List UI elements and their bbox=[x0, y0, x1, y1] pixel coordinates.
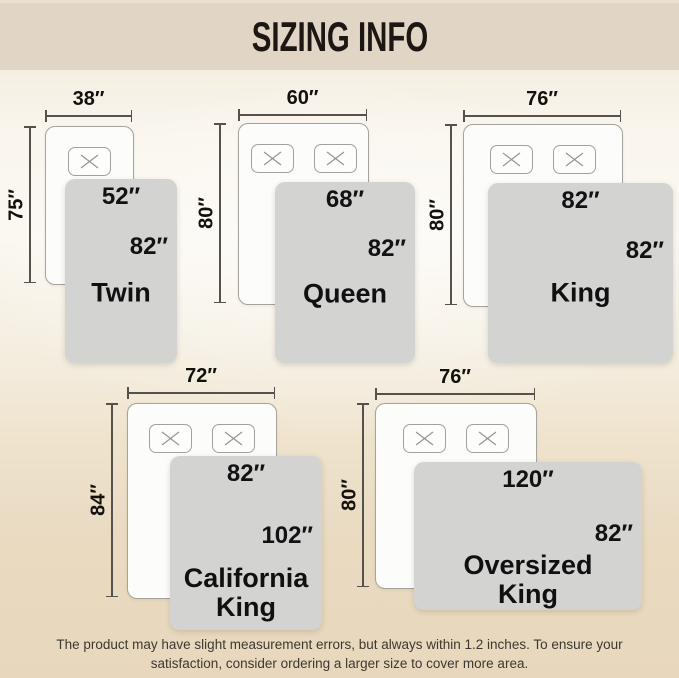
pillow-x-icon bbox=[467, 425, 508, 452]
blanket-california-king: 82″102″California King bbox=[170, 456, 322, 630]
dimension-tick bbox=[463, 110, 465, 122]
bed-width-label: 76″ bbox=[375, 366, 535, 388]
bed-height-label: 80″ bbox=[427, 199, 450, 231]
dimension-tick bbox=[274, 387, 276, 399]
pillow bbox=[403, 424, 446, 453]
blanket-width-label: 52″ bbox=[65, 183, 177, 211]
bed-width-dimension bbox=[375, 388, 535, 400]
pillow-x-icon bbox=[252, 145, 293, 172]
pillow-x-icon bbox=[213, 425, 254, 452]
dimension-line bbox=[463, 115, 621, 117]
size-name-label: California King bbox=[170, 565, 322, 623]
pillow bbox=[490, 145, 533, 174]
dimension-line bbox=[238, 114, 367, 116]
pillow bbox=[149, 424, 192, 453]
blanket-height-label: 82″ bbox=[130, 233, 168, 261]
dimension-tick bbox=[366, 109, 368, 121]
bed-height-label: 84″ bbox=[88, 484, 111, 516]
dimension-line bbox=[450, 124, 452, 305]
sizing-info-page: SIZING INFO 38″75″52″82″Twin60″80″68″82″… bbox=[0, 0, 679, 678]
dimension-tick bbox=[24, 282, 36, 284]
pillow-row bbox=[46, 147, 133, 176]
bed-width-label: 60″ bbox=[238, 87, 367, 109]
dimension-tick bbox=[238, 109, 240, 121]
pillow-x-icon bbox=[150, 425, 191, 452]
dimension-tick bbox=[445, 304, 457, 306]
dimension-tick bbox=[45, 110, 47, 122]
bed-height-label: 80″ bbox=[196, 197, 219, 229]
dimension-line bbox=[375, 393, 535, 395]
dimension-tick bbox=[534, 388, 536, 400]
blanket-oversized-king: 120″82″Oversized King bbox=[414, 462, 642, 610]
blanket-height-label: 82″ bbox=[626, 237, 664, 265]
dimension-tick bbox=[375, 388, 377, 400]
pillow-row bbox=[239, 144, 368, 173]
pillow-x-icon bbox=[404, 425, 445, 452]
pillow-row bbox=[376, 424, 536, 453]
dimension-line bbox=[111, 403, 113, 597]
blanket-width-label: 120″ bbox=[414, 466, 642, 494]
dimension-tick bbox=[106, 403, 118, 405]
dimension-tick bbox=[214, 123, 226, 125]
dimension-line bbox=[29, 126, 31, 283]
pillow-x-icon bbox=[491, 146, 532, 173]
dimension-line bbox=[219, 123, 221, 303]
size-name-label: Queen bbox=[275, 280, 415, 309]
dimension-tick bbox=[214, 302, 226, 304]
size-name-label: King bbox=[488, 278, 673, 307]
blanket-width-label: 68″ bbox=[275, 186, 415, 214]
dimension-tick bbox=[24, 126, 36, 128]
pillow bbox=[553, 145, 596, 174]
size-name-label: Twin bbox=[65, 279, 177, 308]
blanket-height-label: 82″ bbox=[595, 520, 633, 548]
pillow bbox=[68, 147, 111, 176]
bed-width-dimension bbox=[238, 109, 367, 121]
bed-height-label: 80″ bbox=[339, 479, 362, 511]
bed-width-label: 76″ bbox=[463, 88, 621, 110]
blanket-king: 82″82″King bbox=[488, 183, 673, 363]
dimension-line bbox=[362, 403, 364, 587]
dimension-tick bbox=[127, 387, 129, 399]
dimension-tick bbox=[131, 110, 133, 122]
pillow-x-icon bbox=[315, 145, 356, 172]
diagram-area: 38″75″52″82″Twin60″80″68″82″Queen76″80″8… bbox=[0, 0, 679, 678]
footer-note: The product may have slight measurement … bbox=[0, 636, 679, 673]
blanket-height-label: 82″ bbox=[368, 235, 406, 263]
dimension-tick bbox=[357, 403, 369, 405]
dimension-line bbox=[127, 392, 275, 394]
pillow bbox=[466, 424, 509, 453]
pillow-row bbox=[128, 424, 276, 453]
pillow bbox=[212, 424, 255, 453]
bed-width-dimension bbox=[463, 110, 621, 122]
blanket-twin: 52″82″Twin bbox=[65, 179, 177, 363]
bed-width-dimension bbox=[127, 387, 275, 399]
pillow bbox=[314, 144, 357, 173]
bed-width-label: 38″ bbox=[45, 88, 132, 110]
dimension-tick bbox=[357, 586, 369, 588]
size-name-label: Oversized King bbox=[414, 552, 642, 610]
bed-width-label: 72″ bbox=[127, 365, 275, 387]
blanket-width-label: 82″ bbox=[170, 460, 322, 488]
pillow-row bbox=[464, 145, 622, 174]
dimension-tick bbox=[620, 110, 622, 122]
bed-height-label: 75″ bbox=[6, 189, 29, 221]
pillow bbox=[251, 144, 294, 173]
dimension-line bbox=[45, 115, 132, 117]
dimension-tick bbox=[106, 596, 118, 598]
blanket-width-label: 82″ bbox=[488, 187, 673, 215]
blanket-queen: 68″82″Queen bbox=[275, 182, 415, 363]
pillow-x-icon bbox=[69, 148, 110, 175]
bed-width-dimension bbox=[45, 110, 132, 122]
blanket-height-label: 102″ bbox=[261, 522, 313, 550]
pillow-x-icon bbox=[554, 146, 595, 173]
dimension-tick bbox=[445, 124, 457, 126]
